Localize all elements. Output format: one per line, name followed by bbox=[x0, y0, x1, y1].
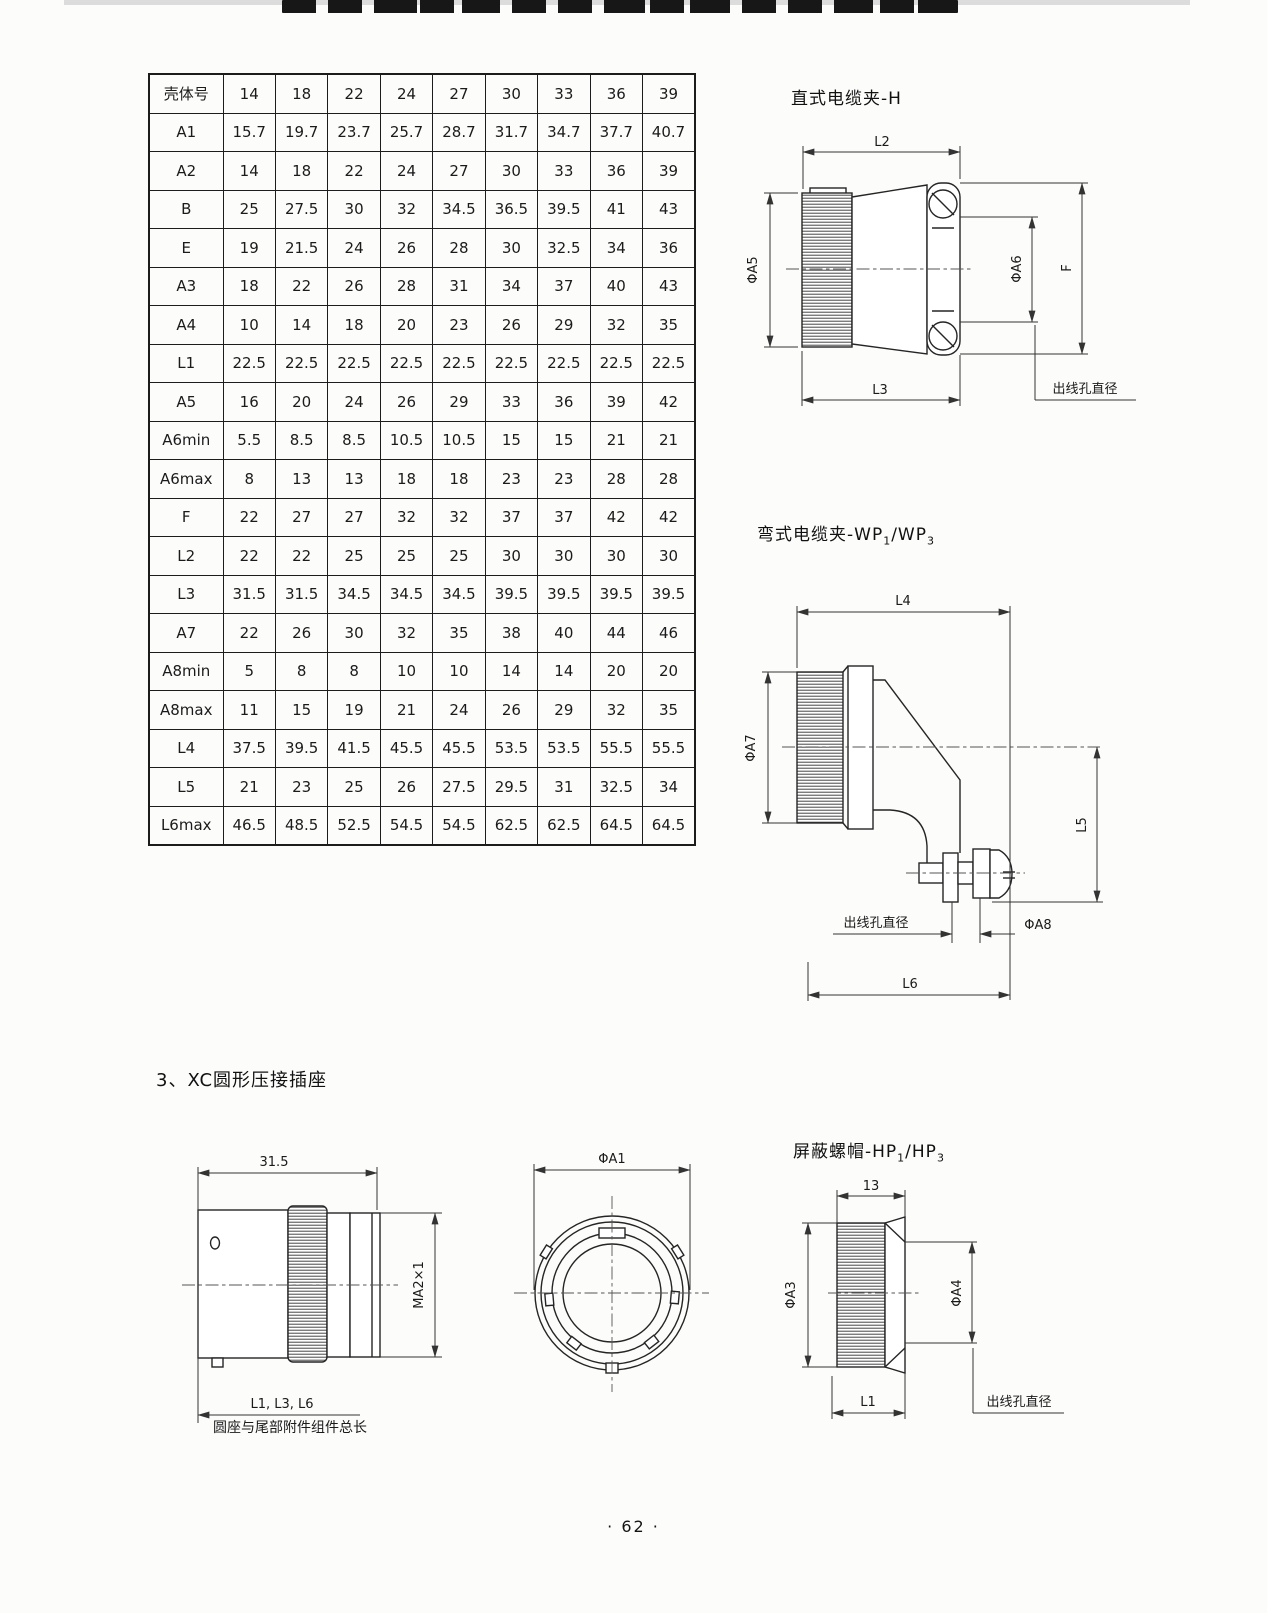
value-cell: 22 bbox=[275, 537, 327, 576]
dim-total-length: L1, L3, L6 圆座与尾部附件组件总长 bbox=[198, 1397, 367, 1436]
straight-clamp-drawing: L2 ΦA5 ΦA6 F L3 出线孔直径 bbox=[720, 125, 1160, 420]
row-label-cell: A6max bbox=[149, 460, 223, 499]
value-cell: 34 bbox=[590, 229, 642, 268]
value-cell: 35 bbox=[643, 691, 696, 730]
table-row: L52123252627.529.53132.534 bbox=[149, 768, 695, 807]
table-row: A5162024262933363942 bbox=[149, 383, 695, 422]
value-cell: 8.5 bbox=[328, 421, 380, 460]
value-cell: 13 bbox=[275, 460, 327, 499]
value-cell: 32 bbox=[590, 691, 642, 730]
value-cell: 53.5 bbox=[485, 729, 537, 768]
value-cell: 31 bbox=[433, 267, 485, 306]
value-cell: 36 bbox=[590, 74, 642, 113]
row-label-cell: A1 bbox=[149, 113, 223, 152]
row-label-cell: B bbox=[149, 190, 223, 229]
value-cell: 10 bbox=[223, 306, 275, 345]
row-label-cell: A8max bbox=[149, 691, 223, 730]
knurl-body bbox=[797, 672, 843, 823]
value-cell: 26 bbox=[485, 306, 537, 345]
row-label-cell: F bbox=[149, 498, 223, 537]
value-cell: 39.5 bbox=[538, 190, 590, 229]
svg-text:31.5: 31.5 bbox=[260, 1155, 289, 1170]
knurl-body bbox=[802, 193, 852, 347]
value-cell: 16 bbox=[223, 383, 275, 422]
value-cell: 23 bbox=[275, 768, 327, 807]
catalog-page: { "page": { "number": "· 62 ·" }, "table… bbox=[0, 0, 1267, 1613]
svg-text:ΦA3: ΦA3 bbox=[784, 1281, 799, 1308]
value-cell: 34 bbox=[485, 267, 537, 306]
value-cell: 30 bbox=[590, 537, 642, 576]
value-cell: 23.7 bbox=[328, 113, 380, 152]
shield-nut-part bbox=[837, 1217, 905, 1373]
value-cell: 62.5 bbox=[538, 806, 590, 845]
svg-text:ΦA8: ΦA8 bbox=[1024, 918, 1051, 933]
shield-nut-drawing: 13 ΦA3 ΦA4 L1 出线孔直径 bbox=[780, 1180, 1080, 1430]
value-cell: 18 bbox=[328, 306, 380, 345]
value-cell: 37 bbox=[485, 498, 537, 537]
value-cell: 46.5 bbox=[223, 806, 275, 845]
value-cell: 54.5 bbox=[380, 806, 432, 845]
value-cell: 43 bbox=[643, 190, 696, 229]
table-row: A4101418202326293235 bbox=[149, 306, 695, 345]
value-cell: 41.5 bbox=[328, 729, 380, 768]
row-label-cell: L3 bbox=[149, 575, 223, 614]
table-row: L122.522.522.522.522.522.522.522.522.5 bbox=[149, 344, 695, 383]
value-cell: 48.5 bbox=[275, 806, 327, 845]
value-cell: 10 bbox=[380, 652, 432, 691]
svg-text:ΦA6: ΦA6 bbox=[1010, 255, 1025, 282]
title-text: 弯式电缆夹-WP bbox=[757, 525, 883, 545]
value-cell: 32 bbox=[380, 190, 432, 229]
value-cell: 40 bbox=[590, 267, 642, 306]
value-cell: 34.5 bbox=[433, 190, 485, 229]
row-label-cell: L1 bbox=[149, 344, 223, 383]
value-cell: 34.5 bbox=[380, 575, 432, 614]
value-cell: 22.5 bbox=[538, 344, 590, 383]
row-label-cell: A8min bbox=[149, 652, 223, 691]
value-cell: 32.5 bbox=[590, 768, 642, 807]
dim-l2: L2 bbox=[803, 135, 960, 189]
value-cell: 18 bbox=[433, 460, 485, 499]
value-cell: 41 bbox=[590, 190, 642, 229]
value-cell: 31.5 bbox=[223, 575, 275, 614]
value-cell: 10.5 bbox=[380, 421, 432, 460]
value-cell: 52.5 bbox=[328, 806, 380, 845]
value-cell: 22.5 bbox=[433, 344, 485, 383]
dim-13: 13 bbox=[837, 1180, 905, 1223]
value-cell: 22.5 bbox=[223, 344, 275, 383]
table-row: L437.539.541.545.545.553.553.555.555.5 bbox=[149, 729, 695, 768]
value-cell: 33 bbox=[485, 383, 537, 422]
value-cell: 39.5 bbox=[643, 575, 696, 614]
socket-caption: 圆座与尾部附件组件总长 bbox=[213, 1420, 367, 1436]
shield-nut-title: 屏蔽螺帽-HP1/HP3 bbox=[793, 1137, 945, 1164]
value-cell: 26 bbox=[485, 691, 537, 730]
table-row: A2141822242730333639 bbox=[149, 152, 695, 191]
dim-a3: ΦA3 bbox=[784, 1223, 837, 1367]
socket-side-part bbox=[198, 1206, 380, 1367]
value-cell: 18 bbox=[275, 152, 327, 191]
value-cell: 40 bbox=[538, 614, 590, 653]
value-cell: 27 bbox=[275, 498, 327, 537]
value-cell: 32 bbox=[380, 614, 432, 653]
value-cell: 22 bbox=[328, 74, 380, 113]
row-label-cell: E bbox=[149, 229, 223, 268]
svg-text:L4: L4 bbox=[895, 594, 911, 609]
svg-text:L5: L5 bbox=[1075, 817, 1090, 833]
value-cell: 46 bbox=[643, 614, 696, 653]
value-cell: 28 bbox=[433, 229, 485, 268]
value-cell: 31.7 bbox=[485, 113, 537, 152]
row-label-cell: L6max bbox=[149, 806, 223, 845]
value-cell: 30 bbox=[643, 537, 696, 576]
value-cell: 32.5 bbox=[538, 229, 590, 268]
value-cell: 30 bbox=[485, 74, 537, 113]
value-cell: 30 bbox=[538, 537, 590, 576]
svg-text:F: F bbox=[1060, 264, 1075, 271]
value-cell: 28 bbox=[590, 460, 642, 499]
knurl-body bbox=[837, 1223, 885, 1367]
table-row: A7222630323538404446 bbox=[149, 614, 695, 653]
value-cell: 19.7 bbox=[275, 113, 327, 152]
value-cell: 26 bbox=[380, 229, 432, 268]
title-subscript: 1 bbox=[897, 1151, 905, 1164]
value-cell: 30 bbox=[485, 537, 537, 576]
table-row: A8max111519212426293235 bbox=[149, 691, 695, 730]
row-label-cell: A3 bbox=[149, 267, 223, 306]
value-cell: 30 bbox=[328, 190, 380, 229]
value-cell: 21 bbox=[643, 421, 696, 460]
value-cell: 11 bbox=[223, 691, 275, 730]
value-cell: 39 bbox=[643, 152, 696, 191]
value-cell: 36 bbox=[590, 152, 642, 191]
value-cell: 20 bbox=[275, 383, 327, 422]
value-cell: 10.5 bbox=[433, 421, 485, 460]
value-cell: 25 bbox=[328, 768, 380, 807]
socket-side-drawing: 31.5 MA2×1 L1, L3, L6 圆座与尾部附件组件总长 bbox=[170, 1140, 460, 1440]
row-label-cell: L5 bbox=[149, 768, 223, 807]
svg-text:ΦA4: ΦA4 bbox=[950, 1279, 965, 1306]
bent-clamp-part bbox=[797, 666, 1015, 902]
table-row: A6min5.58.58.510.510.515152121 bbox=[149, 421, 695, 460]
row-label-cell: A7 bbox=[149, 614, 223, 653]
value-cell: 29 bbox=[538, 691, 590, 730]
value-cell: 22 bbox=[223, 498, 275, 537]
dim-a7: ΦA7 bbox=[744, 672, 797, 823]
value-cell: 25 bbox=[328, 537, 380, 576]
svg-text:MA2×1: MA2×1 bbox=[412, 1261, 427, 1309]
dim-l6: L6 bbox=[808, 962, 1010, 1001]
value-cell: 39 bbox=[590, 383, 642, 422]
value-cell: 22.5 bbox=[328, 344, 380, 383]
value-cell: 32 bbox=[590, 306, 642, 345]
value-cell: 14 bbox=[538, 652, 590, 691]
value-cell: 5.5 bbox=[223, 421, 275, 460]
title-subscript: 3 bbox=[927, 534, 935, 547]
value-cell: 19 bbox=[223, 229, 275, 268]
table-row: B2527.5303234.536.539.54143 bbox=[149, 190, 695, 229]
value-cell: 8 bbox=[328, 652, 380, 691]
value-cell: 18 bbox=[275, 74, 327, 113]
row-label-cell: A2 bbox=[149, 152, 223, 191]
value-cell: 44 bbox=[590, 614, 642, 653]
title-text: 3、XC圆形压接插座 bbox=[156, 1070, 327, 1091]
value-cell: 15.7 bbox=[223, 113, 275, 152]
value-cell: 22.5 bbox=[380, 344, 432, 383]
value-cell: 37 bbox=[538, 498, 590, 537]
value-cell: 27.5 bbox=[275, 190, 327, 229]
value-cell: 24 bbox=[328, 229, 380, 268]
value-cell: 37.5 bbox=[223, 729, 275, 768]
value-cell: 20 bbox=[643, 652, 696, 691]
title-text: /WP bbox=[891, 525, 927, 545]
table-row: A8min588101014142020 bbox=[149, 652, 695, 691]
svg-text:出线孔直径: 出线孔直径 bbox=[843, 916, 908, 931]
table-row: L2222225252530303030 bbox=[149, 537, 695, 576]
dim-a5: ΦA5 bbox=[746, 193, 798, 347]
value-cell: 31.5 bbox=[275, 575, 327, 614]
svg-text:13: 13 bbox=[863, 1180, 880, 1194]
value-cell: 28 bbox=[643, 460, 696, 499]
value-cell: 32 bbox=[433, 498, 485, 537]
value-cell: 27 bbox=[433, 152, 485, 191]
value-cell: 20 bbox=[380, 306, 432, 345]
table-row: E1921.52426283032.53436 bbox=[149, 229, 695, 268]
page-number-text: · 62 · bbox=[607, 1517, 660, 1536]
value-cell: 33 bbox=[538, 74, 590, 113]
value-cell: 14 bbox=[485, 652, 537, 691]
value-cell: 54.5 bbox=[433, 806, 485, 845]
value-cell: 37 bbox=[538, 267, 590, 306]
value-cell: 34.5 bbox=[328, 575, 380, 614]
row-label-cell: 壳体号 bbox=[149, 74, 223, 113]
value-cell: 36 bbox=[538, 383, 590, 422]
value-cell: 43 bbox=[643, 267, 696, 306]
value-cell: 39.5 bbox=[590, 575, 642, 614]
value-cell: 15 bbox=[485, 421, 537, 460]
value-cell: 36.5 bbox=[485, 190, 537, 229]
value-cell: 62.5 bbox=[485, 806, 537, 845]
nut-cap bbox=[990, 850, 1012, 898]
outlet-hole-label: 出线孔直径 bbox=[1035, 325, 1136, 400]
svg-text:ΦA1: ΦA1 bbox=[598, 1152, 625, 1167]
value-cell: 34.7 bbox=[538, 113, 590, 152]
bent-clamp-title: 弯式电缆夹-WP1/WP3 bbox=[757, 520, 935, 547]
value-cell: 25 bbox=[433, 537, 485, 576]
value-cell: 14 bbox=[223, 152, 275, 191]
svg-text:出线孔直径: 出线孔直径 bbox=[986, 1395, 1051, 1410]
value-cell: 24 bbox=[328, 383, 380, 422]
value-cell: 20 bbox=[590, 652, 642, 691]
value-cell: 22 bbox=[223, 614, 275, 653]
title-text: 屏蔽螺帽-HP bbox=[793, 1142, 897, 1162]
svg-text:L1: L1 bbox=[860, 1395, 876, 1410]
value-cell: 22.5 bbox=[485, 344, 537, 383]
value-cell: 27 bbox=[433, 74, 485, 113]
value-cell: 42 bbox=[590, 498, 642, 537]
knurl-body bbox=[288, 1206, 327, 1362]
value-cell: 55.5 bbox=[643, 729, 696, 768]
svg-text:ΦA5: ΦA5 bbox=[746, 256, 761, 283]
value-cell: 28 bbox=[380, 267, 432, 306]
value-cell: 30 bbox=[485, 152, 537, 191]
value-cell: 26 bbox=[328, 267, 380, 306]
value-cell: 23 bbox=[485, 460, 537, 499]
value-cell: 27 bbox=[328, 498, 380, 537]
value-cell: 25 bbox=[223, 190, 275, 229]
value-cell: 32 bbox=[380, 498, 432, 537]
value-cell: 22.5 bbox=[643, 344, 696, 383]
value-cell: 45.5 bbox=[433, 729, 485, 768]
row-label-cell: A4 bbox=[149, 306, 223, 345]
dim-a8: ΦA8 bbox=[980, 918, 1052, 934]
title-subscript: 3 bbox=[937, 1151, 945, 1164]
value-cell: 30 bbox=[328, 614, 380, 653]
value-cell: 39.5 bbox=[538, 575, 590, 614]
value-cell: 24 bbox=[380, 152, 432, 191]
value-cell: 35 bbox=[433, 614, 485, 653]
value-cell: 39.5 bbox=[275, 729, 327, 768]
row-label-cell: A6min bbox=[149, 421, 223, 460]
svg-text:L2: L2 bbox=[874, 135, 890, 150]
value-cell: 15 bbox=[538, 421, 590, 460]
value-cell: 34 bbox=[643, 768, 696, 807]
svg-text:L6: L6 bbox=[902, 977, 918, 992]
value-cell: 18 bbox=[223, 267, 275, 306]
dim-outlet: 出线孔直径 bbox=[833, 898, 980, 943]
value-cell: 14 bbox=[275, 306, 327, 345]
bent-clamp-drawing: L4 ΦA7 L5 出线孔直径 ΦA8 L6 bbox=[720, 560, 1160, 1010]
socket-front-drawing: ΦA1 bbox=[500, 1140, 730, 1400]
section3-title: 3、XC圆形压接插座 bbox=[156, 1066, 327, 1092]
value-cell: 22.5 bbox=[590, 344, 642, 383]
value-cell: 34.5 bbox=[433, 575, 485, 614]
value-cell: 21 bbox=[223, 768, 275, 807]
table-row: L6max46.548.552.554.554.562.562.564.564.… bbox=[149, 806, 695, 845]
value-cell: 37.7 bbox=[590, 113, 642, 152]
value-cell: 55.5 bbox=[590, 729, 642, 768]
row-label-cell: L4 bbox=[149, 729, 223, 768]
value-cell: 25 bbox=[380, 537, 432, 576]
value-cell: 22.5 bbox=[275, 344, 327, 383]
value-cell: 5 bbox=[223, 652, 275, 691]
value-cell: 22 bbox=[223, 537, 275, 576]
value-cell: 23 bbox=[538, 460, 590, 499]
row-label-cell: A5 bbox=[149, 383, 223, 422]
value-cell: 29.5 bbox=[485, 768, 537, 807]
value-cell: 42 bbox=[643, 498, 696, 537]
value-cell: 64.5 bbox=[590, 806, 642, 845]
value-cell: 39 bbox=[643, 74, 696, 113]
value-cell: 23 bbox=[433, 306, 485, 345]
value-cell: 64.5 bbox=[643, 806, 696, 845]
svg-text:出线孔直径: 出线孔直径 bbox=[1052, 382, 1117, 397]
value-cell: 26 bbox=[380, 383, 432, 422]
table-row: A3182226283134374043 bbox=[149, 267, 695, 306]
value-cell: 38 bbox=[485, 614, 537, 653]
svg-text:L3: L3 bbox=[872, 383, 888, 398]
straight-clamp-title: 直式电缆夹-H bbox=[791, 84, 902, 109]
table-row: F222727323237374242 bbox=[149, 498, 695, 537]
header-cutoff-title bbox=[282, 0, 958, 13]
title-text: 直式电缆夹-H bbox=[791, 89, 902, 109]
dimension-table: 壳体号141822242730333639A115.719.723.725.72… bbox=[148, 73, 696, 846]
value-cell: 10 bbox=[433, 652, 485, 691]
svg-text:L1, L3, L6: L1, L3, L6 bbox=[250, 1397, 313, 1412]
table-row: A115.719.723.725.728.731.734.737.740.7 bbox=[149, 113, 695, 152]
row-label-cell: L2 bbox=[149, 537, 223, 576]
svg-text:ΦA7: ΦA7 bbox=[744, 734, 759, 761]
table-row: A6max81313181823232828 bbox=[149, 460, 695, 499]
value-cell: 8 bbox=[223, 460, 275, 499]
value-cell: 18 bbox=[380, 460, 432, 499]
value-cell: 21 bbox=[380, 691, 432, 730]
value-cell: 26 bbox=[380, 768, 432, 807]
value-cell: 45.5 bbox=[380, 729, 432, 768]
value-cell: 28.7 bbox=[433, 113, 485, 152]
value-cell: 36 bbox=[643, 229, 696, 268]
value-cell: 29 bbox=[433, 383, 485, 422]
title-subscript: 1 bbox=[883, 534, 891, 547]
value-cell: 24 bbox=[380, 74, 432, 113]
value-cell: 8 bbox=[275, 652, 327, 691]
title-text: /HP bbox=[905, 1142, 937, 1162]
value-cell: 24 bbox=[433, 691, 485, 730]
value-cell: 22 bbox=[275, 267, 327, 306]
value-cell: 14 bbox=[223, 74, 275, 113]
value-cell: 25.7 bbox=[380, 113, 432, 152]
value-cell: 29 bbox=[538, 306, 590, 345]
dim-l3: L3 bbox=[802, 351, 960, 406]
value-cell: 13 bbox=[328, 460, 380, 499]
dimension-table-body: 壳体号141822242730333639A115.719.723.725.72… bbox=[149, 74, 695, 845]
value-cell: 53.5 bbox=[538, 729, 590, 768]
table-header-row: 壳体号141822242730333639 bbox=[149, 74, 695, 113]
value-cell: 27.5 bbox=[433, 768, 485, 807]
value-cell: 35 bbox=[643, 306, 696, 345]
value-cell: 21 bbox=[590, 421, 642, 460]
value-cell: 39.5 bbox=[485, 575, 537, 614]
dim-l1: L1 bbox=[832, 1373, 905, 1419]
dim-a6: ΦA6 bbox=[960, 217, 1038, 322]
value-cell: 8.5 bbox=[275, 421, 327, 460]
value-cell: 30 bbox=[485, 229, 537, 268]
page-number: · 62 · bbox=[0, 1517, 1267, 1536]
value-cell: 22 bbox=[328, 152, 380, 191]
value-cell: 26 bbox=[275, 614, 327, 653]
value-cell: 31 bbox=[538, 768, 590, 807]
value-cell: 21.5 bbox=[275, 229, 327, 268]
value-cell: 15 bbox=[275, 691, 327, 730]
outlet-hole-label: 出线孔直径 bbox=[973, 1348, 1064, 1413]
table-row: L331.531.534.534.534.539.539.539.539.5 bbox=[149, 575, 695, 614]
value-cell: 40.7 bbox=[643, 113, 696, 152]
value-cell: 33 bbox=[538, 152, 590, 191]
dim-a4: ΦA4 bbox=[905, 1242, 977, 1343]
value-cell: 42 bbox=[643, 383, 696, 422]
value-cell: 19 bbox=[328, 691, 380, 730]
